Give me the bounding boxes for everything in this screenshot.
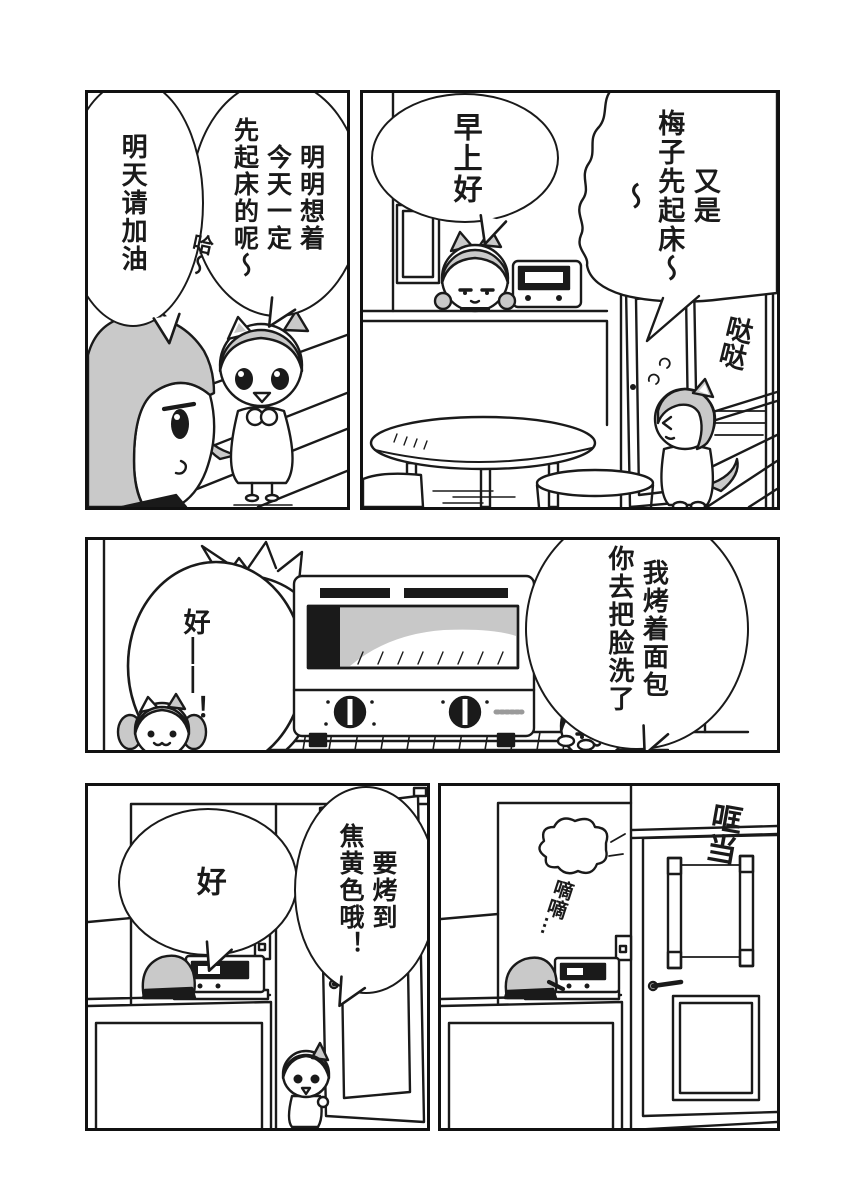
toaster-foot — [310, 734, 326, 746]
meiko-braid — [499, 293, 515, 309]
counter-edge — [88, 995, 271, 1128]
left-cabinet — [88, 918, 131, 1004]
manga-panel-3: 好——！ 我烤着面包 你去把脸洗了 — [85, 537, 780, 753]
cat-paw — [261, 409, 277, 425]
meiko-paw — [558, 736, 574, 746]
toaster-foot — [498, 734, 514, 746]
toaster-top-slot — [320, 588, 508, 598]
door-panel — [673, 996, 759, 1100]
hall-wall-line — [766, 289, 773, 507]
door-slam-puff — [539, 819, 607, 874]
motion-lines — [715, 411, 766, 435]
floor-stool — [363, 474, 423, 507]
door-stopper — [414, 788, 426, 796]
bubble-tail — [149, 310, 188, 349]
counter-front-panel — [96, 1023, 262, 1128]
counter-edge — [363, 311, 607, 425]
threshold-line — [631, 1122, 777, 1128]
left-cabinet — [441, 914, 498, 1004]
manga-panel-2: 明明想着 今天一定 先起床的呢～ 明天请加油 哈～ — [85, 90, 350, 510]
speech-bubble-toast-golden: 要烤到 焦黄色哦！ — [294, 786, 430, 994]
speech-text: 我烤着面包 你去把脸洗了 — [603, 545, 672, 713]
speech-text: 明天请加油 — [116, 133, 150, 273]
light-switch — [616, 936, 631, 960]
cat-dress — [289, 1096, 322, 1127]
manga-page: { "page": { "background": "#ffffff", "in… — [0, 0, 850, 1200]
counter-front-panel — [449, 1023, 613, 1128]
speech-bubble-greeting: 早上好 — [371, 93, 559, 223]
meiko-paw — [578, 740, 594, 750]
speech-text: 要烤到 焦黄色哦！ — [333, 823, 399, 958]
speech-text: 好 — [188, 866, 228, 898]
manga-panel-5: 哐当 嘀嘀… — [438, 783, 780, 1131]
speech-bubble-ok: 好 — [118, 808, 298, 956]
under-table-shade — [433, 491, 515, 503]
offpanel-speech-text: 又是 梅子先起床～～ — [615, 101, 722, 291]
cat-paw — [318, 1097, 328, 1107]
speech-text: 早上好 — [446, 112, 484, 205]
door-handle — [630, 384, 636, 390]
reply-speech-text: 好——！ — [176, 586, 212, 746]
manga-panel-1: 又是 梅子先起床～～ 早上好 哒哒 — [360, 90, 780, 510]
meiko-dress — [505, 989, 556, 998]
cat-dress — [661, 446, 712, 506]
manga-panel-4: 好 要烤到 焦黄色哦！ — [85, 783, 430, 1131]
counter-edge — [441, 995, 622, 1128]
meiko-braid — [435, 293, 451, 309]
meiko-dress — [143, 988, 195, 998]
speech-text: 明明想着 今天一定 先起床的呢～ — [228, 117, 327, 279]
floor-stool — [537, 470, 653, 496]
